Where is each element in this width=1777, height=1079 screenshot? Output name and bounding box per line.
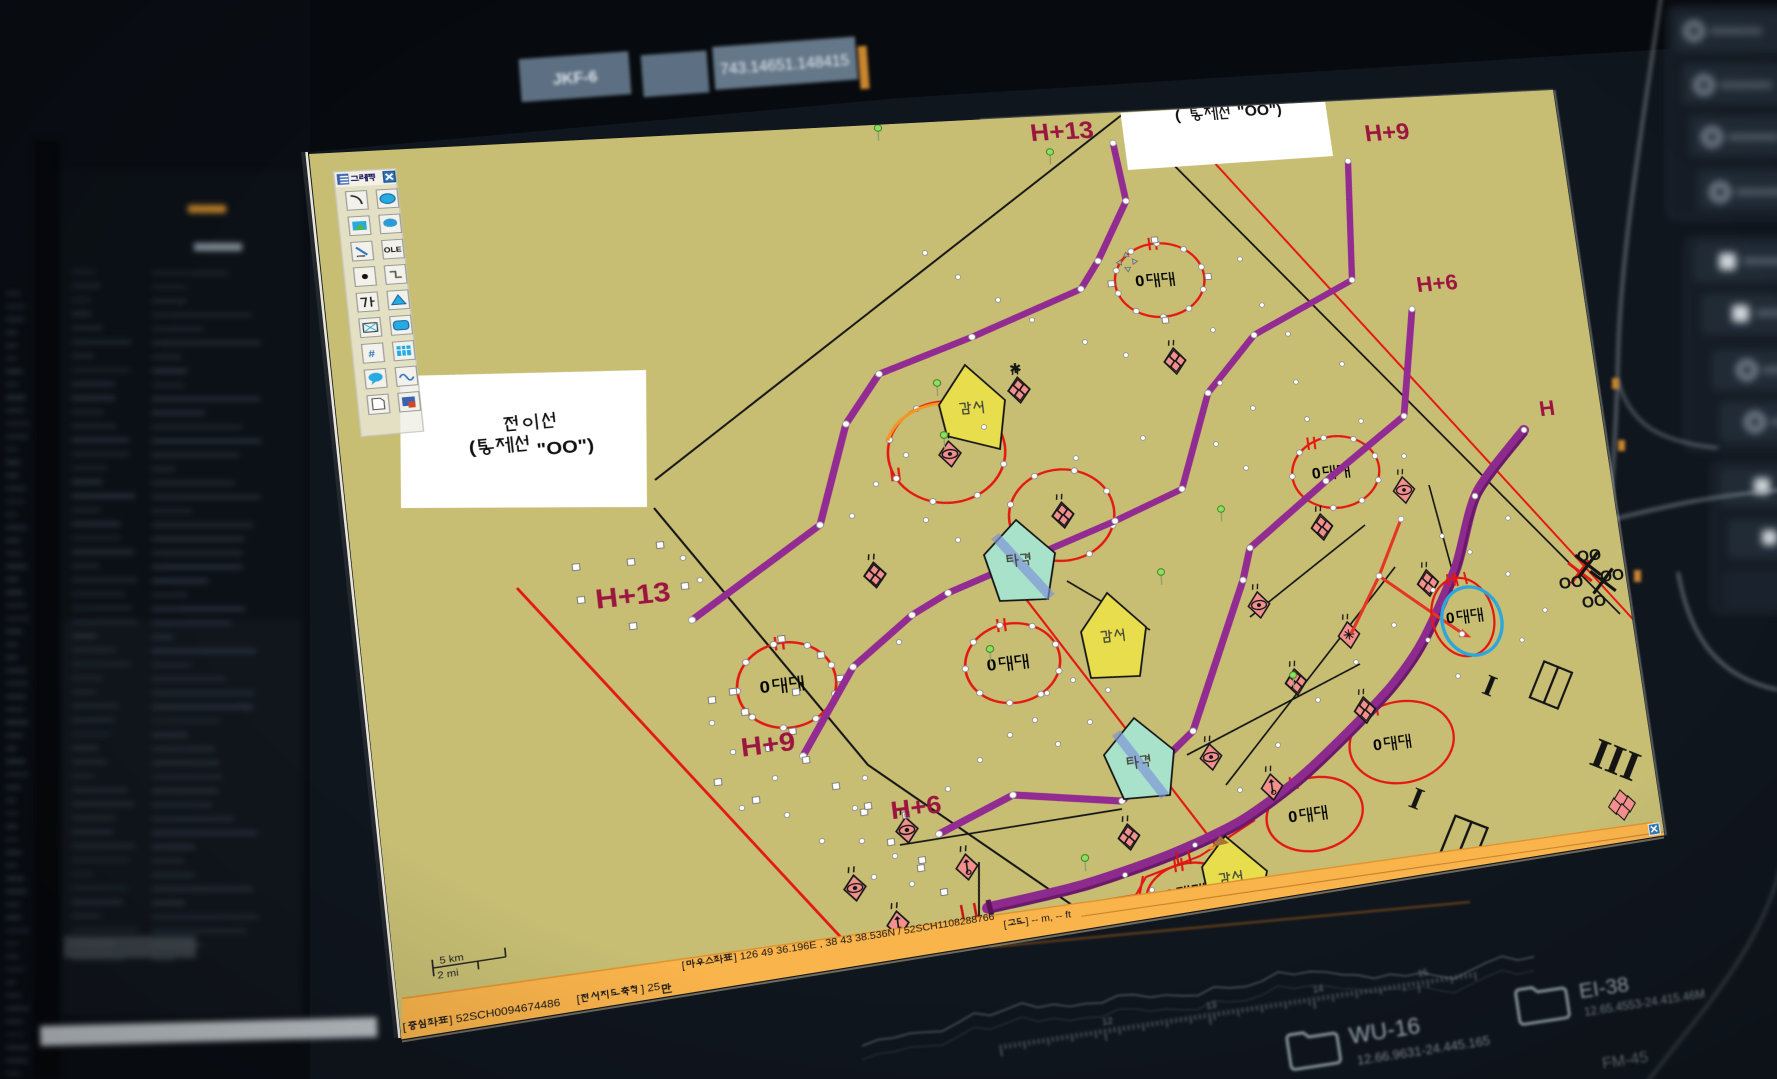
svg-text:12: 12	[1101, 1016, 1113, 1028]
svg-text:JKF-6: JKF-6	[552, 69, 598, 89]
svg-text:H+13: H+13	[1029, 117, 1096, 147]
svg-text:OO: OO	[1576, 546, 1603, 566]
svg-text:OO: OO	[1558, 573, 1585, 593]
svg-text:✱: ✱	[1008, 360, 1023, 377]
svg-text:H+9: H+9	[1363, 119, 1411, 147]
svg-text:0: 0	[759, 677, 771, 697]
svg-text:OO: OO	[1581, 592, 1608, 612]
svg-text:OO: OO	[1599, 566, 1625, 586]
svg-text:H+6: H+6	[1415, 270, 1459, 297]
svg-text:"OO"): "OO")	[1236, 101, 1282, 120]
svg-text:ips: ips	[386, 225, 396, 232]
svg-text:#: #	[368, 349, 376, 360]
svg-text:OLE: OLE	[383, 245, 402, 254]
